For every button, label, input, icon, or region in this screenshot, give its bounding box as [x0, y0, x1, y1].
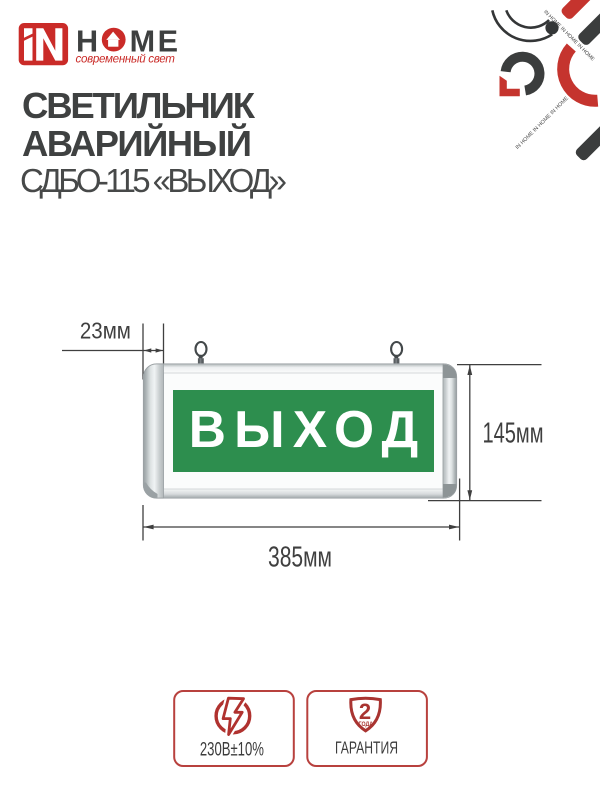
svg-text:ГАРАНТИЯ: ГАРАНТИЯ [335, 738, 398, 758]
svg-text:современный свет: современный свет [76, 53, 176, 66]
svg-text:IN HOME IN HOME IN HOME: IN HOME IN HOME IN HOME [515, 95, 571, 151]
svg-text:СВЕТИЛЬНИК: СВЕТИЛЬНИК [22, 85, 256, 126]
svg-text:ВЫХОД: ВЫХОД [189, 400, 427, 458]
svg-text:385мм: 385мм [268, 542, 332, 574]
svg-text:АВАРИЙНЫЙ: АВАРИЙНЫЙ [22, 122, 252, 164]
svg-text:СДБО-115 «ВЫХОД»: СДБО-115 «ВЫХОД» [20, 162, 287, 199]
svg-text:230В±10%: 230В±10% [200, 740, 264, 761]
svg-text:23мм: 23мм [80, 317, 131, 343]
svg-text:145мм: 145мм [483, 418, 544, 450]
svg-text:ГОДА: ГОДА [359, 721, 374, 728]
